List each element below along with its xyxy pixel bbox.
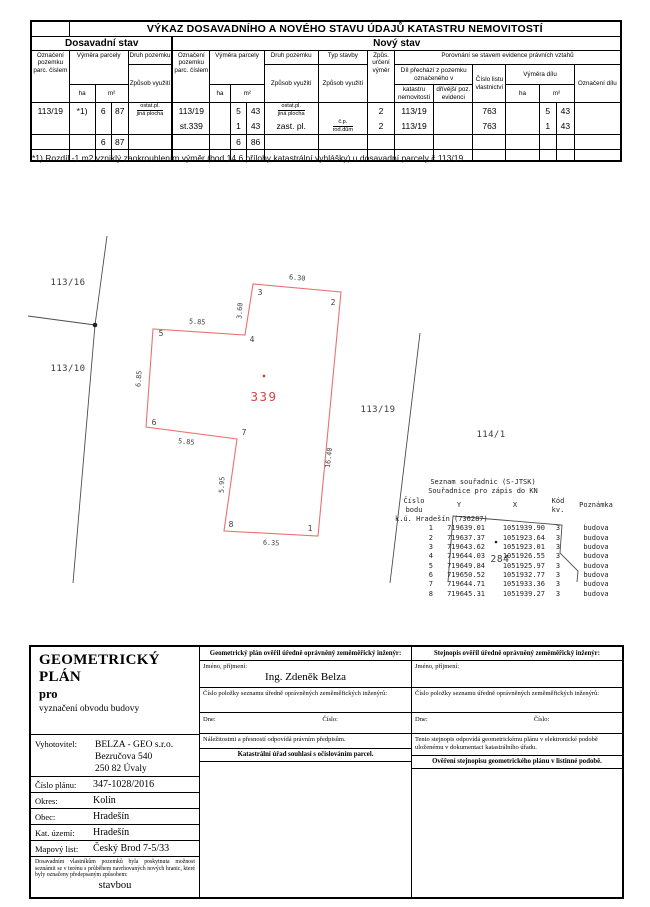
- dim-label-5-95: 5.95: [218, 477, 227, 494]
- row-label: Okres:: [35, 796, 93, 806]
- part-m2-b: 43: [557, 119, 575, 135]
- dim-label-16-40: 16.40: [324, 447, 334, 468]
- coord-row: 8719645.311051939.273budova: [395, 590, 621, 599]
- vertex-label-5: 5: [159, 329, 164, 338]
- coord-cell: 1051923.01: [485, 543, 545, 552]
- building-type-value: č.p.rod.dům: [318, 119, 368, 135]
- hdr-old-usage: Způsob využití: [128, 65, 172, 103]
- boundary-junction-dot: [93, 323, 98, 328]
- totals-spacer: [557, 135, 575, 150]
- coord-cell: 1051933.36: [485, 580, 545, 589]
- totals-spacer: [69, 135, 95, 150]
- coord-col-code: Kód kv.: [545, 497, 571, 516]
- plan-title-block: GEOMETRICKÝ PLÁN pro vyznačení obvodu bu…: [31, 647, 199, 735]
- row-value: 347-1028/2016: [93, 779, 154, 790]
- survey-drawing: 123456786.303.605.856.855.855.956.3516.4…: [0, 228, 650, 620]
- building-type-top: č.p.: [333, 119, 354, 127]
- coord-cell: 5: [395, 562, 433, 571]
- plan-title-pro: pro: [39, 687, 191, 702]
- former-records-value: [434, 103, 473, 119]
- new-landtype-value: ostat.pl.jiná plocha: [264, 103, 318, 119]
- vykaz-title: VÝKAZ DOSAVADNÍHO A NOVÉHO STAVU ÚDAJŮ K…: [69, 21, 621, 37]
- new-ha: [210, 119, 231, 135]
- old-note-mark: *1): [69, 103, 95, 119]
- row-label: Kat. území:: [35, 828, 93, 838]
- building-339-outline: [146, 284, 341, 536]
- coord-cell: 719639.01: [433, 524, 485, 533]
- number-label: Číslo:: [534, 716, 550, 723]
- totals-spacer: [128, 135, 172, 150]
- empty-cell: [473, 150, 506, 162]
- part-ha: [506, 119, 539, 135]
- new-m2-a: 1: [230, 119, 247, 135]
- verifier-name-block: Jméno, příjmení: Ing. Zdeněk Belza: [200, 661, 411, 688]
- copy-verifier-header: Stejnopis ověřil úředně oprávněný zeměmě…: [412, 647, 622, 661]
- vertex-label-4: 4: [250, 335, 255, 344]
- verifier-header: Geometrický plán ověřil úředně oprávněný…: [200, 647, 411, 661]
- landtype-top: ostat.pl.: [137, 103, 164, 111]
- cadastre-office-header: Katastrální úřad souhlasí s očíslováním …: [200, 749, 411, 762]
- west-boundary: [73, 236, 107, 583]
- hdr-new-landtype: Druh pozemku: [264, 51, 318, 65]
- new-m2-a: 5: [230, 103, 247, 119]
- coord-col-number: Číslo bodu: [395, 497, 433, 516]
- cadastre-parcel: 113/19: [394, 103, 433, 119]
- coord-cell: 3: [545, 562, 571, 571]
- list-item-number-block: Číslo položky seznamu úředně oprávněných…: [200, 688, 411, 713]
- old-m2-b: [112, 119, 129, 135]
- hdr-cadastre: katastru nemovitostí: [394, 85, 433, 103]
- parcel-label-114-1: 114/1: [476, 430, 505, 440]
- row-value: Český Brod 7-5/33: [93, 843, 169, 854]
- ownership-sheet-value: 763: [473, 103, 506, 119]
- coord-row: 5719649.841051925.973budova: [395, 562, 621, 571]
- table-row: 113/19 *1) 6 87 ostat.pl.jiná plocha 113…: [31, 103, 621, 119]
- date-label: Dne:: [415, 716, 428, 723]
- date-number-block: Dne: Číslo:: [412, 713, 622, 734]
- copy-verification-space: [412, 769, 622, 897]
- coord-col-remark: Poznámka: [571, 497, 621, 516]
- new-parcel-number: 113/19: [172, 103, 209, 119]
- part-id-value: [574, 103, 621, 119]
- parcel-label-113-16: 113/16: [51, 278, 86, 288]
- part-m2-b: 43: [557, 103, 575, 119]
- dim-label-5-85-a: 5.85: [189, 317, 206, 326]
- parcel-label-113-19: 113/19: [361, 405, 396, 415]
- vertex-label-1: 1: [308, 524, 313, 533]
- totals-spacer: [473, 135, 506, 150]
- coord-ku-row: k.ú. Hradešín (736287): [395, 515, 621, 524]
- producer-line: BELZA - GEO s.r.o.: [95, 739, 173, 751]
- hdr-new-usage: Způsob využití: [264, 65, 318, 103]
- new-m2-b: 43: [247, 103, 265, 119]
- new-total-m2-b: 86: [247, 135, 265, 150]
- dim-label-6-85: 6.85: [134, 370, 143, 387]
- coord-cell: budova: [571, 571, 621, 580]
- coord-cell: budova: [571, 562, 621, 571]
- part-m2-a: 1: [539, 119, 557, 135]
- coord-cell: 1051932.77: [485, 571, 545, 580]
- ownership-sheet-value: 763: [473, 119, 506, 135]
- old-total-m2-a: 6: [95, 135, 112, 150]
- old-note-mark: [69, 119, 95, 135]
- hdr-part-area: Výměra dílu: [506, 65, 574, 85]
- totals-spacer: [394, 135, 433, 150]
- title-left-spacer: [31, 21, 69, 37]
- hdr-new-area: Výměra parcely: [210, 51, 265, 85]
- coord-cell: 1051923.64: [485, 534, 545, 543]
- coord-row: 2719637.371051923.643budova: [395, 534, 621, 543]
- coord-cell: 719650.52: [433, 571, 485, 580]
- hdr-part-m2: m²: [539, 85, 574, 103]
- dim-label-5-85-b: 5.85: [178, 437, 195, 447]
- plan-number-row: Číslo plánu: 347-1028/2016: [31, 777, 199, 793]
- coord-cell: 719645.31: [433, 590, 485, 599]
- coord-cell: 719649.84: [433, 562, 485, 571]
- plan-footer: GEOMETRICKÝ PLÁN pro vyznačení obvodu bu…: [29, 645, 624, 899]
- method-value: 2: [368, 103, 395, 119]
- building-339-number: 339: [250, 389, 277, 404]
- old-total-m2-b: 87: [112, 135, 129, 150]
- totals-spacer: [539, 135, 557, 150]
- footer-right-column: Stejnopis ověřil úředně oprávněný zeměmě…: [411, 647, 622, 897]
- producer-label: Vyhotovitel:: [35, 739, 95, 776]
- new-total-m2-a: 6: [230, 135, 247, 150]
- compliance-note: Náležitostmi a přesností odpovídá právní…: [200, 734, 411, 749]
- coord-cell: 3: [545, 534, 571, 543]
- empty-cell: [539, 150, 557, 162]
- coord-cell: budova: [571, 524, 621, 533]
- coord-cell: 1051925.97: [485, 562, 545, 571]
- totals-spacer: [574, 135, 621, 150]
- coord-cell: 6: [395, 571, 433, 580]
- district-row: Okres: Kolín: [31, 793, 199, 809]
- rounding-note: *1) Rozdíl -1 m2 vzniklý zaokrouhlením v…: [32, 153, 463, 163]
- coord-list-title: Seznam souřadnic (S-JTSK): [395, 478, 571, 487]
- coord-row: 4719644.031051926.553budova: [395, 552, 621, 561]
- old-parcel-number: [31, 119, 69, 135]
- hdr-part-from: Díl přechází z pozemku označeného v: [394, 65, 472, 85]
- row-label: Mapový list:: [35, 844, 93, 854]
- coord-cell: 3: [545, 524, 571, 533]
- coord-cell: 4: [395, 552, 433, 561]
- old-landtype-value: ostat.pl.jiná plocha: [128, 103, 172, 119]
- coord-cell: 719637.37: [433, 534, 485, 543]
- dim-label-6-35: 6.35: [263, 539, 280, 548]
- hdr-old-landtype: Druh pozemku: [128, 51, 172, 65]
- geometric-plan-page: VÝKAZ DOSAVADNÍHO A NOVÉHO STAVU ÚDAJŮ K…: [0, 0, 650, 907]
- part-m2-a: 5: [539, 103, 557, 119]
- cadastre-office-space: [200, 762, 411, 897]
- coord-cell: 8: [395, 590, 433, 599]
- totals-spacer: [172, 135, 209, 150]
- totals-row: 6 87 6 86: [31, 135, 621, 150]
- hdr-old-parcel: Označení pozemku parc. číslem: [31, 51, 69, 103]
- name-label: Jméno, příjmení:: [415, 663, 619, 670]
- hdr-building-type: Typ stavby: [318, 51, 368, 65]
- building-339-point: [263, 375, 266, 378]
- producer-line: 250 82 Úvaly: [95, 763, 173, 775]
- coord-col-x: X: [485, 497, 545, 516]
- hdr-part-id: Označení dílu: [574, 65, 621, 103]
- coord-cell: 2: [395, 534, 433, 543]
- new-parcel-number: st.339: [172, 119, 209, 135]
- row-label: Číslo plánu:: [35, 780, 93, 790]
- copy-verification-header: Ověření stejnopisu geometrického plánu v…: [412, 756, 622, 769]
- coord-row: 3719643.621051923.013budova: [395, 543, 621, 552]
- landtype-bottom: jiná plocha: [278, 111, 305, 118]
- list-item-number-block: Číslo položky seznamu úředně oprávněných…: [412, 688, 622, 713]
- date-number-block: Dne: Číslo:: [200, 713, 411, 734]
- vertex-label-2: 2: [331, 298, 336, 307]
- cadastral-area-row: Kat. území: Hradešín: [31, 825, 199, 841]
- coord-cell: budova: [571, 534, 621, 543]
- parcel-label-113-10: 113/10: [51, 364, 86, 374]
- totals-spacer: [210, 135, 231, 150]
- coord-table: Číslo bodu Y X Kód kv. Poznámka k.ú. Hra…: [395, 497, 621, 599]
- coordinate-list: Seznam souřadnic (S-JTSK) Souřadnice pro…: [395, 478, 635, 599]
- vertex-label-7: 7: [242, 428, 247, 437]
- plan-purpose: vyznačení obvodu budovy: [39, 704, 191, 714]
- hdr-area-method: Způs. určení výměr: [368, 51, 395, 103]
- dim-label-6-30: 6.30: [289, 273, 306, 282]
- name-label: Jméno, příjmení:: [203, 663, 408, 670]
- old-m2-b: 87: [112, 103, 129, 119]
- row-value: Kolín: [93, 795, 116, 806]
- producer-value: BELZA - GEO s.r.o. Bezručova 540 250 82 …: [95, 739, 173, 776]
- totals-spacer: [506, 135, 539, 150]
- new-landtype-value: zast. pl.: [264, 119, 318, 135]
- vertex-label-6: 6: [152, 418, 157, 427]
- coord-cell: 719644.03: [433, 552, 485, 561]
- coord-cell: budova: [571, 552, 621, 561]
- coord-cell: 3: [545, 543, 571, 552]
- owners-notice-value: stavbou: [35, 880, 195, 891]
- coord-cell: budova: [571, 543, 621, 552]
- section-old-label: Dosavadní stav: [31, 37, 172, 51]
- dim-label-3-60: 3.60: [235, 302, 244, 319]
- empty-cell: [506, 150, 539, 162]
- map-sheet-row: Mapový list: Český Brod 7-5/33: [31, 841, 199, 857]
- totals-spacer: [264, 135, 318, 150]
- hdr-building-usage: Způsob využití: [318, 65, 368, 103]
- old-m2-a: [95, 119, 112, 135]
- cadastral-unit-label: k.ú. Hradešín (736287): [395, 515, 621, 524]
- coord-cell: budova: [571, 580, 621, 589]
- coord-cell: 1051926.55: [485, 552, 545, 561]
- hdr-new-parcel: Označení pozemku parc. číslem: [172, 51, 209, 103]
- copy-compliance-note: Tento stejnopis odpovídá geometrickému p…: [412, 734, 622, 756]
- cadastre-parcel: 113/19: [394, 119, 433, 135]
- row-label: Obec:: [35, 812, 93, 822]
- new-ha: [210, 103, 231, 119]
- part-ha: [506, 103, 539, 119]
- vertex-label-8: 8: [229, 520, 234, 529]
- coord-list-subtitle: Souřadnice pro zápis do KN: [395, 487, 571, 496]
- row-value: Hradešín: [93, 827, 129, 838]
- hdr-old-ha: ha: [69, 85, 95, 103]
- hdr-old-area: Výměra parcely: [69, 51, 128, 85]
- footer-middle-column: Geometrický plán ověřil úředně oprávněný…: [199, 647, 411, 897]
- owners-notice-text: Dosavadním vlastníkům pozemků byla posky…: [35, 859, 195, 879]
- hdr-ownership-sheet: Číslo listu vlastnictví: [473, 65, 506, 103]
- totals-spacer: [318, 135, 368, 150]
- coord-cell: 1051939.90: [485, 524, 545, 533]
- coord-row: 7719644.711051933.363budova: [395, 580, 621, 589]
- verifier-name: Ing. Zdeněk Belza: [203, 671, 408, 683]
- coord-rows: 1719639.011051939.903budova2719637.37105…: [395, 524, 621, 598]
- coord-row: 6719650.521051932.773budova: [395, 571, 621, 580]
- coord-cell: 3: [395, 543, 433, 552]
- old-parcel-number: 113/19: [31, 103, 69, 119]
- coord-cell: 1: [395, 524, 433, 533]
- empty-cell: [574, 150, 621, 162]
- coord-header-row: Číslo bodu Y X Kód kv. Poznámka: [395, 497, 621, 516]
- coord-cell: 3: [545, 580, 571, 589]
- old-m2-a: 6: [95, 103, 112, 119]
- building-type-value: [318, 103, 368, 119]
- hdr-part-ha: ha: [506, 85, 539, 103]
- owners-notice-block: Dosavadním vlastníkům pozemků byla posky…: [31, 857, 199, 897]
- copy-verifier-name-block: Jméno, příjmení:: [412, 661, 622, 688]
- number-label: Číslo:: [322, 716, 338, 723]
- producer-block: Vyhotovitel: BELZA - GEO s.r.o. Bezručov…: [31, 735, 199, 777]
- vykaz-table: VÝKAZ DOSAVADNÍHO A NOVÉHO STAVU ÚDAJŮ K…: [30, 20, 622, 162]
- municipality-row: Obec: Hradešín: [31, 809, 199, 825]
- hdr-old-m2: m²: [95, 85, 128, 103]
- coord-row: 1719639.011051939.903budova: [395, 524, 621, 533]
- coord-cell: 719644.71: [433, 580, 485, 589]
- vertex-label-3: 3: [258, 288, 263, 297]
- coord-cell: budova: [571, 590, 621, 599]
- coord-cell: 3: [545, 590, 571, 599]
- part-id-value: [574, 119, 621, 135]
- coord-cell: 3: [545, 571, 571, 580]
- hdr-new-ha: ha: [210, 85, 231, 103]
- coord-cell: 1051939.27: [485, 590, 545, 599]
- old-landtype-value: [128, 119, 172, 135]
- plan-title: GEOMETRICKÝ PLÁN: [39, 652, 191, 686]
- coord-cell: 7: [395, 580, 433, 589]
- footer-left-column: GEOMETRICKÝ PLÁN pro vyznačení obvodu bu…: [31, 647, 199, 897]
- coord-cell: 719643.62: [433, 543, 485, 552]
- totals-spacer: [434, 135, 473, 150]
- producer-line: Bezručova 540: [95, 751, 173, 763]
- empty-cell: [557, 150, 575, 162]
- hdr-comparison: Porovnání se stavem evidence právních vz…: [394, 51, 621, 65]
- hdr-new-m2: m²: [230, 85, 264, 103]
- section-new-label: Nový stav: [172, 37, 621, 51]
- building-type-bottom: rod.dům: [333, 127, 354, 134]
- former-records-value: [434, 119, 473, 135]
- table-row: st.339 1 43 zast. pl. č.p.rod.dům 2 113/…: [31, 119, 621, 135]
- coord-cell: 3: [545, 552, 571, 561]
- landtype-top: ostat.pl.: [278, 103, 305, 111]
- landtype-bottom: jiná plocha: [137, 111, 164, 118]
- totals-spacer: [368, 135, 395, 150]
- hdr-former-records: dřívější poz. evidenci: [434, 85, 473, 103]
- date-label: Dne:: [203, 716, 216, 723]
- row-value: Hradešín: [93, 811, 129, 822]
- new-m2-b: 43: [247, 119, 265, 135]
- west-boundary-branch: [28, 316, 95, 325]
- coord-col-y: Y: [433, 497, 485, 516]
- totals-spacer: [31, 135, 69, 150]
- method-value: 2: [368, 119, 395, 135]
